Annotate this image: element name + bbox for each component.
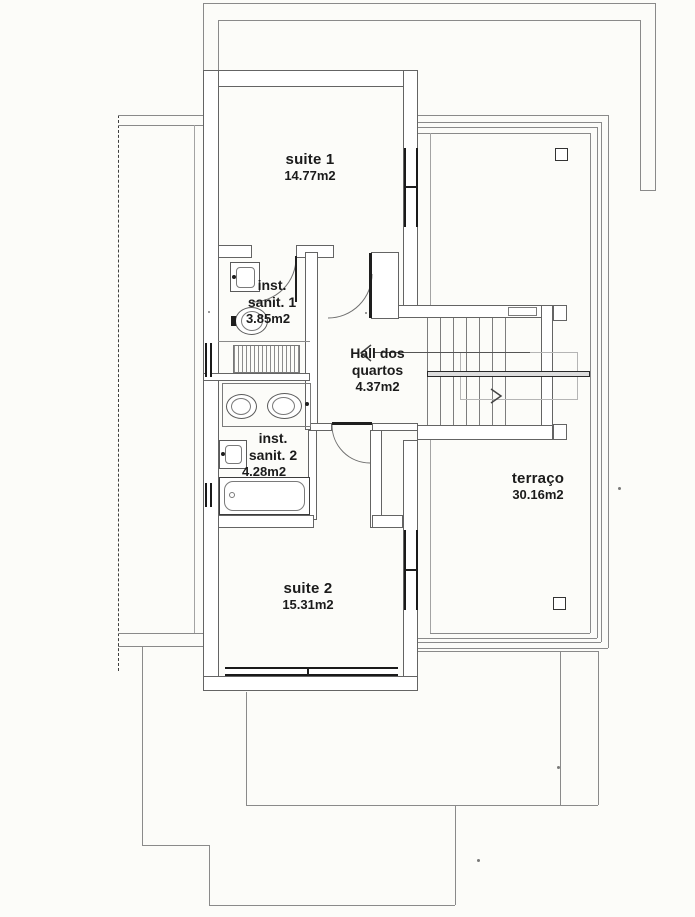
terrace-border-bottom-5 — [417, 651, 598, 652]
stair-handrail — [427, 371, 590, 377]
room-sanit1-label: inst. sanit. 1 — [232, 277, 312, 311]
exterior-wall-bottom — [203, 676, 418, 691]
door-bath2-leaf — [332, 422, 372, 425]
terrace-floor-edge-upper — [430, 133, 431, 305]
room-name: terraço — [478, 470, 598, 487]
wall-shower-divider — [218, 341, 310, 342]
left-wall-top-b — [118, 125, 203, 126]
roof-outline-right-outer — [655, 3, 656, 190]
lower-roof-right-edge — [598, 651, 599, 805]
window-suite2-south-mullion — [307, 667, 309, 676]
window-bath2 — [205, 483, 212, 507]
lower-roof-inner-line — [560, 651, 561, 805]
terrace-border-top-4 — [417, 133, 590, 134]
room-name-line1: inst. — [233, 430, 313, 447]
wall-below-shower — [203, 373, 310, 381]
terrace-border-bottom-1 — [430, 633, 590, 634]
window-suite1-mullion — [405, 186, 417, 188]
wall-suite2-north-a — [218, 515, 314, 528]
roof-outline-left-inner — [218, 20, 219, 71]
room-area: 15.31m2 — [238, 597, 378, 613]
room-suite1-label: suite 1 14.77m2 — [240, 151, 380, 184]
room-name-line2: quartos — [330, 362, 425, 379]
left-wall-top-a — [118, 115, 203, 116]
terrace-border-right-1 — [608, 115, 609, 648]
scan-speck — [365, 312, 367, 314]
stair-down-arrow-icon — [489, 387, 504, 405]
terrace-border-right-3 — [597, 127, 598, 638]
terrace-border-top-3 — [417, 127, 597, 128]
window-shower — [205, 343, 212, 377]
room-suite2-label: suite 2 15.31m2 — [238, 580, 378, 613]
sink-2-faucet-icon — [221, 452, 225, 456]
scan-speck — [208, 311, 210, 313]
terrace-border-bottom-4 — [417, 648, 608, 649]
room-name-line2: sanit. 2 — [233, 447, 313, 464]
bidet-bowl — [231, 398, 251, 415]
floor-plan-canvas: suite 1 14.77m2 inst. sanit. 1 3.85m2 Ha… — [0, 0, 695, 917]
toilet-2-bowl — [272, 397, 295, 415]
room-area: 14.77m2 — [240, 168, 380, 184]
bathtub-basin — [224, 481, 305, 511]
room-name-line1: inst. — [232, 277, 312, 294]
room-name: suite 1 — [240, 151, 380, 168]
terrace-border-top-2 — [417, 122, 601, 123]
shower-fixture — [233, 345, 300, 373]
terrace-column-top — [555, 148, 568, 161]
stair-wall-niche — [508, 307, 537, 316]
room-name-line1: Hall dos — [330, 345, 425, 362]
terrace-border-right-2 — [601, 122, 602, 642]
room-area: 4.37m2 — [330, 379, 425, 395]
room-sanit2-label: inst. sanit. 2 — [233, 430, 313, 464]
stair-column-south — [553, 424, 567, 440]
terrace-border-top-1 — [417, 115, 608, 116]
terrace-floor-edge-lower — [430, 440, 431, 633]
bathtub-drain-icon — [229, 492, 235, 498]
lower-patio-right — [455, 805, 456, 905]
left-inner-line — [194, 125, 195, 633]
door-suite1-leaf — [369, 253, 372, 318]
roof-outline-right-inner — [640, 20, 641, 190]
window-suite2-south — [225, 667, 398, 676]
room-hall-label: Hall dos quartos 4.37m2 — [330, 345, 425, 395]
lower-roof-bottom-edge — [246, 805, 598, 806]
scan-speck — [557, 766, 560, 769]
lower-patio-step-top — [142, 845, 209, 846]
property-boundary-dashed-line — [118, 115, 119, 671]
wall-corridor-east — [370, 430, 382, 528]
roof-outline-right-cap — [640, 190, 656, 191]
room-name-line2: sanit. 1 — [232, 294, 312, 311]
terrace-border-bottom-2 — [417, 638, 597, 639]
wall-suite2-north-b — [372, 515, 403, 528]
lower-roof-left-edge — [246, 692, 247, 805]
scan-speck — [618, 487, 621, 490]
lower-patio-step-left — [209, 845, 210, 905]
stair-wall-south — [417, 425, 553, 440]
wall-suite1-south-a — [218, 245, 252, 258]
stair-column-north — [553, 305, 567, 321]
left-wall-bottom-a — [118, 633, 203, 634]
wall-suite1-door-pillar — [371, 252, 399, 319]
door-bath2-swing-arc — [332, 425, 370, 463]
room-area: 30.16m2 — [478, 487, 598, 503]
room-area: 3.85m2 — [232, 311, 304, 327]
window-suite2-mullion — [405, 569, 417, 571]
toilet-2-cistern-icon — [305, 402, 309, 406]
lower-patio-bottom — [209, 905, 455, 906]
scan-speck — [477, 859, 480, 862]
room-name: suite 2 — [238, 580, 378, 597]
room-sanit2-area: 4.28m2 — [228, 464, 300, 480]
roof-outline-top-outer — [203, 3, 656, 4]
roof-outline-left-outer — [203, 3, 204, 71]
roof-outline-top-inner — [218, 20, 641, 21]
room-terraco-label: terraço 30.16m2 — [478, 470, 598, 503]
terrace-column-bottom — [553, 597, 566, 610]
room-area: 4.28m2 — [228, 464, 300, 480]
exterior-wall-top — [203, 70, 418, 87]
lower-patio-left-upper — [142, 646, 143, 845]
left-wall-bottom-b — [118, 646, 203, 647]
terrace-border-bottom-3 — [417, 642, 601, 643]
room-sanit1-area: 3.85m2 — [232, 311, 304, 327]
terrace-border-right-4 — [590, 133, 591, 633]
